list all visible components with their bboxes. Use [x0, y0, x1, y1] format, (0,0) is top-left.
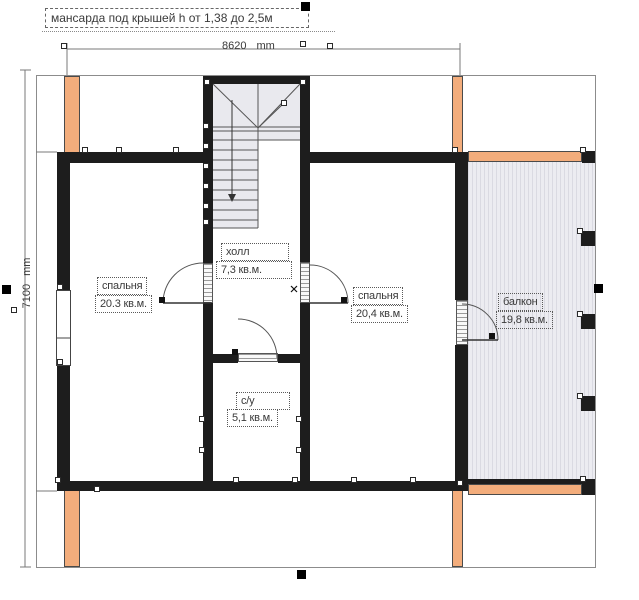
dimension-width-unit: mm: [256, 40, 274, 52]
node-handle[interactable]: [57, 359, 63, 365]
node-handle[interactable]: [300, 79, 306, 85]
door-bedroom-right: [300, 262, 310, 303]
node-handle[interactable]: [203, 203, 209, 209]
label-bathroom-area[interactable]: 5,1 кв.м.: [227, 409, 278, 427]
node-handle[interactable]: [203, 183, 209, 189]
node-handle[interactable]: [296, 447, 302, 453]
wall-stairwell-right-lower: [300, 303, 310, 491]
node-handle[interactable]: [281, 100, 287, 106]
node-handle[interactable]: [457, 480, 463, 486]
node-handle[interactable]: [233, 477, 239, 483]
node-handle[interactable]: [577, 228, 583, 234]
label-bedroom-left-name[interactable]: спальня: [97, 277, 147, 295]
node-handle[interactable]: [410, 477, 416, 483]
node-handle[interactable]: [94, 486, 100, 492]
node-handle[interactable]: [296, 416, 302, 422]
wall-stairwell-top: [203, 76, 310, 84]
label-bedroom-right-name[interactable]: спальня: [353, 287, 403, 305]
node-handle[interactable]: [11, 307, 17, 313]
balcony-post: [581, 231, 595, 246]
node-handle[interactable]: [351, 477, 357, 483]
node-handle[interactable]: [199, 447, 205, 453]
balcony-post: [581, 314, 595, 329]
balcony-beam-bottom: [468, 484, 582, 495]
door-bathroom: [238, 353, 278, 362]
node-handle[interactable]: [203, 163, 209, 169]
label-balcony-name[interactable]: балкон: [498, 293, 543, 311]
node-handle[interactable]: [292, 477, 298, 483]
node-handle[interactable]: [577, 311, 583, 317]
door-bedroom-left: [203, 263, 213, 303]
node-handle[interactable]: [580, 147, 586, 153]
label-hall-name[interactable]: холл: [221, 243, 289, 261]
node-handle[interactable]: [55, 477, 61, 483]
label-bedroom-left-area[interactable]: 20.3 кв.м.: [95, 295, 152, 313]
wall-exterior-right-upper: [455, 152, 468, 300]
wall-bathroom-top-left: [213, 354, 238, 363]
wall-stairwell-left-upper: [203, 76, 213, 263]
selection-handle-top[interactable]: [301, 2, 310, 11]
dimension-width[interactable]: 8620mm: [222, 40, 275, 52]
dimension-width-value: 8620: [222, 40, 246, 52]
node-handle[interactable]: [204, 79, 210, 85]
label-hall-area[interactable]: 7,3 кв.м.: [216, 261, 292, 279]
balcony-beam-top: [468, 151, 582, 162]
corner-post-top-left: [64, 76, 80, 153]
node-handle[interactable]: [116, 147, 122, 153]
wall-exterior-top-left: [57, 152, 213, 163]
node-handle[interactable]: [203, 143, 209, 149]
node-handle[interactable]: [577, 393, 583, 399]
node-handle[interactable]: [173, 147, 179, 153]
wall-stairwell-left-lower: [203, 303, 213, 491]
node-handle[interactable]: [199, 416, 205, 422]
label-balcony-area[interactable]: 19,8 кв.м.: [496, 311, 553, 329]
node-handle[interactable]: [57, 284, 63, 290]
wall-exterior-top-right: [310, 152, 468, 163]
dimension-height-unit: mm: [21, 258, 33, 276]
node-handle[interactable]: [61, 43, 67, 49]
stairs-flight-area: [213, 140, 258, 228]
door-balcony: [456, 300, 468, 345]
label-bathroom-name[interactable]: с/у: [236, 392, 290, 410]
node-handle[interactable]: [327, 43, 333, 49]
floor-plan-canvas: мансарда под крышей h от 1,38 до 2,5м 86…: [0, 0, 639, 600]
selection-handle-right[interactable]: [594, 284, 603, 293]
wall-exterior-right-lower: [455, 345, 468, 491]
door-handle-grip[interactable]: [489, 333, 495, 339]
node-handle[interactable]: [580, 476, 586, 482]
node-handle[interactable]: [82, 147, 88, 153]
door-handle-grip[interactable]: [341, 297, 347, 303]
stairs-winder-area: [213, 84, 300, 140]
door-handle-grip[interactable]: [232, 349, 238, 355]
node-handle[interactable]: [300, 41, 306, 47]
selection-handle-left[interactable]: [2, 285, 11, 294]
node-handle[interactable]: [452, 147, 458, 153]
wall-stairwell-right-upper: [300, 76, 310, 262]
wall-bathroom-top-right: [278, 354, 310, 363]
plan-title[interactable]: мансарда под крышей h от 1,38 до 2,5м: [45, 8, 309, 28]
door-handle-grip[interactable]: [159, 297, 165, 303]
selection-handle-bottom[interactable]: [297, 570, 306, 579]
dimension-height[interactable]: 7100mm: [21, 223, 33, 343]
title-underline: [42, 31, 335, 32]
label-bedroom-right-area[interactable]: 20,4 кв.м.: [351, 305, 408, 323]
window-left-wall: [56, 290, 71, 366]
corner-post-bottom-right: [452, 490, 463, 567]
dimension-height-value: 7100: [21, 284, 33, 308]
corner-post-top-right: [452, 76, 463, 153]
balcony-post: [581, 396, 595, 411]
wall-exterior-bottom: [57, 481, 468, 491]
node-handle[interactable]: [203, 123, 209, 129]
node-handle[interactable]: [203, 219, 209, 225]
corner-post-bottom-left: [64, 490, 80, 567]
